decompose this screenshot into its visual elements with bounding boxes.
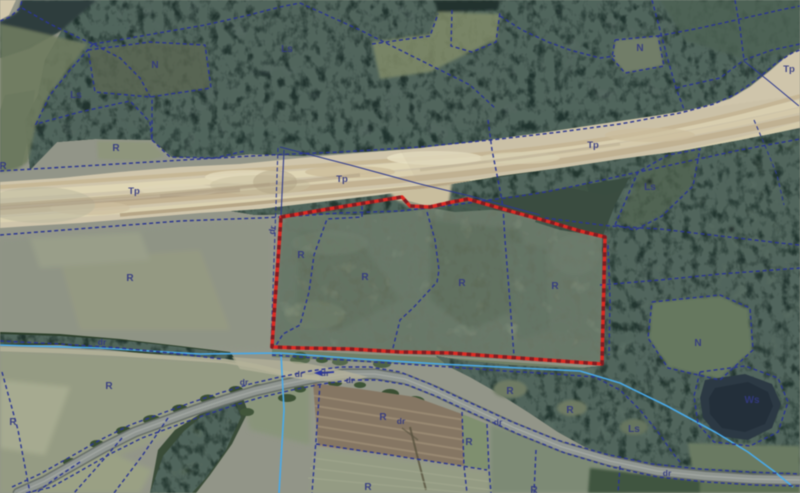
svg-text:dr: dr — [397, 416, 406, 426]
svg-text:R: R — [530, 485, 538, 493]
svg-text:R: R — [126, 273, 134, 284]
svg-text:R: R — [506, 386, 514, 397]
svg-text:Tp: Tp — [336, 174, 348, 185]
svg-text:R: R — [551, 281, 559, 292]
svg-text:Ls: Ls — [70, 90, 82, 101]
svg-text:R: R — [297, 250, 305, 261]
svg-text:R: R — [112, 143, 120, 154]
svg-text:N: N — [151, 60, 158, 71]
svg-text:R: R — [566, 405, 574, 416]
svg-text:R: R — [364, 482, 372, 493]
svg-text:dr: dr — [663, 468, 672, 478]
svg-text:Tp: Tp — [128, 186, 140, 197]
svg-text:R: R — [379, 412, 387, 423]
svg-text:dr: dr — [98, 337, 107, 347]
svg-text:N: N — [694, 338, 701, 349]
svg-text:R: R — [465, 437, 473, 448]
svg-text:R: R — [0, 161, 7, 172]
svg-text:Ls: Ls — [281, 44, 293, 55]
svg-text:Ls: Ls — [628, 424, 640, 435]
svg-text:dr: dr — [240, 377, 249, 387]
svg-text:dr: dr — [321, 368, 330, 378]
svg-text:Ls: Ls — [644, 182, 656, 193]
svg-text:dr: dr — [346, 375, 355, 385]
svg-text:dr: dr — [494, 417, 503, 427]
svg-text:R: R — [9, 417, 17, 428]
svg-text:dr: dr — [295, 369, 304, 379]
svg-text:Ws: Ws — [745, 395, 760, 406]
svg-text:R: R — [458, 278, 466, 289]
svg-text:R: R — [105, 381, 113, 392]
svg-text:Tp: Tp — [587, 140, 599, 151]
svg-text:Tp: Tp — [783, 64, 795, 75]
svg-text:R: R — [361, 272, 369, 283]
svg-text:N: N — [636, 43, 643, 54]
